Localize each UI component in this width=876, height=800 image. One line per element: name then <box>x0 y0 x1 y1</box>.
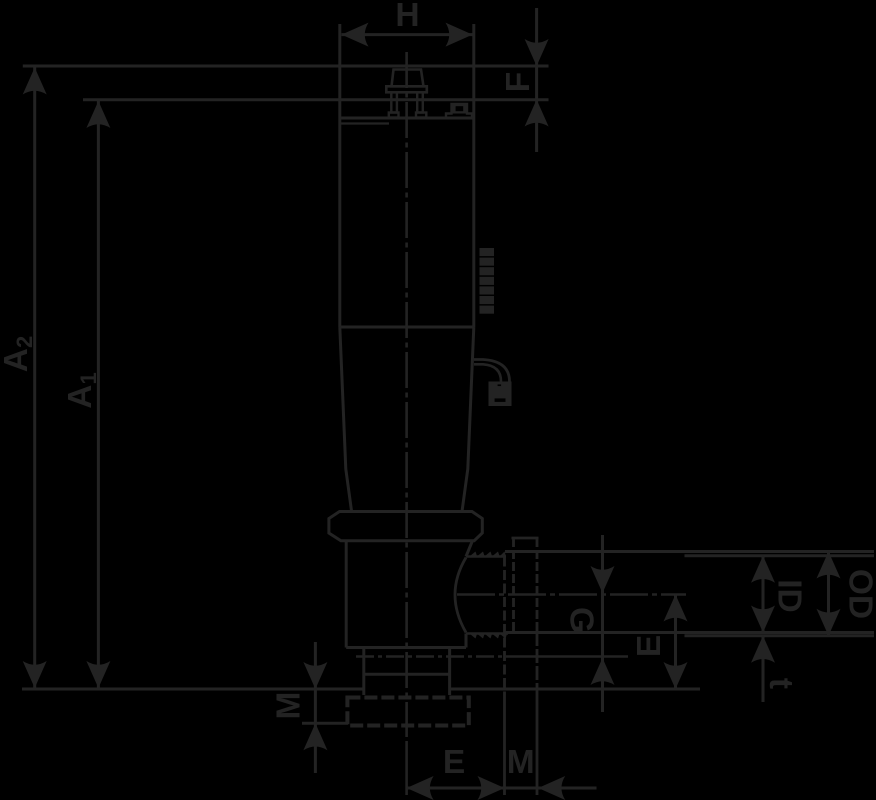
svg-text:F: F <box>500 72 537 92</box>
svg-text:OD: OD <box>842 569 876 619</box>
svg-text:G: G <box>563 607 600 633</box>
svg-text:E: E <box>443 744 465 781</box>
svg-text:A1: A1 <box>62 372 101 408</box>
svg-text:H: H <box>395 0 419 34</box>
svg-text:M: M <box>271 692 308 720</box>
svg-text:ID: ID <box>771 579 808 613</box>
svg-text:t: t <box>762 678 799 689</box>
svg-text:A2: A2 <box>0 336 37 372</box>
svg-text:E: E <box>631 635 668 657</box>
svg-text:M: M <box>507 744 535 781</box>
